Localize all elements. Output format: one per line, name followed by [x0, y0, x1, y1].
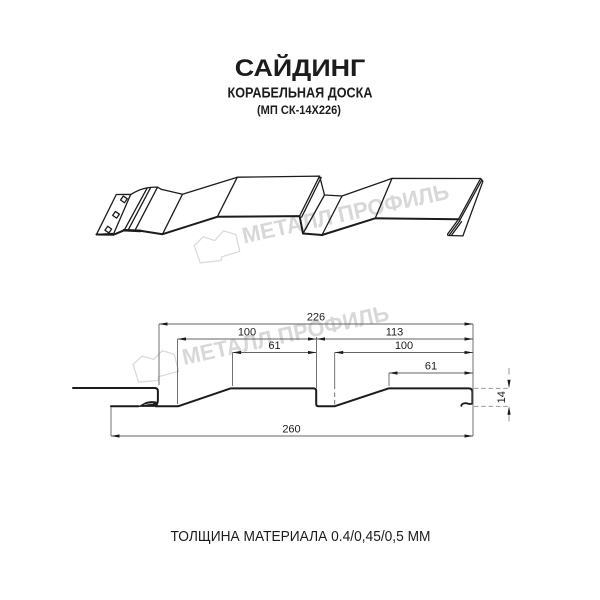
svg-text:100: 100	[238, 327, 256, 339]
svg-text:61: 61	[425, 361, 437, 373]
svg-text:61: 61	[268, 340, 280, 352]
svg-text:14: 14	[496, 391, 508, 403]
svg-text:ТОЛЩИНА МАТЕРИАЛА 0.4/0,45/0,5: ТОЛЩИНА МАТЕРИАЛА 0.4/0,45/0,5 ММ	[171, 529, 431, 545]
svg-text:260: 260	[282, 424, 300, 436]
svg-text:САЙДИНГ: САЙДИНГ	[235, 54, 366, 82]
svg-text:(МП СК-14Х226): (МП СК-14Х226)	[257, 105, 341, 117]
svg-text:226: 226	[307, 312, 325, 324]
svg-text:МЕТАЛЛ ПРОФИЛЬ: МЕТАЛЛ ПРОФИЛЬ	[240, 179, 451, 248]
svg-text:КОРАБЕЛЬНАЯ ДОСКА: КОРАБЕЛЬНАЯ ДОСКА	[228, 85, 373, 102]
svg-text:113: 113	[386, 327, 404, 339]
svg-text:100: 100	[395, 340, 413, 352]
svg-text:МЕТАЛЛ ПРОФИЛЬ: МЕТАЛЛ ПРОФИЛЬ	[180, 301, 391, 370]
